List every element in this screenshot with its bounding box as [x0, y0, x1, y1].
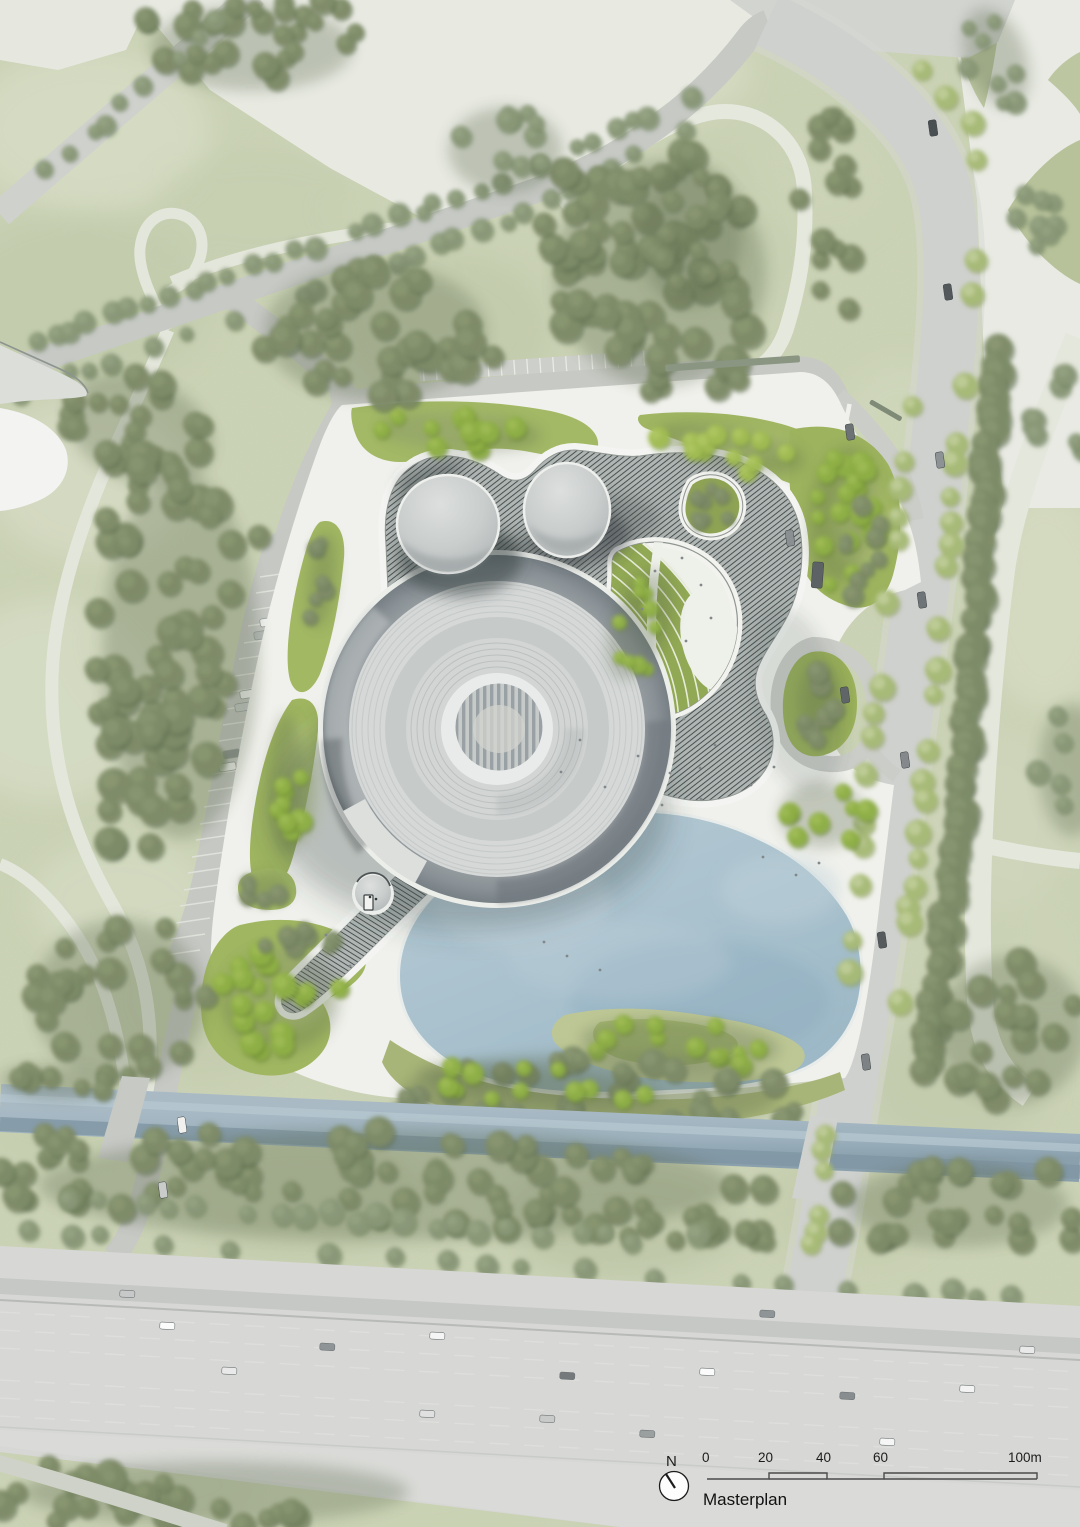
svg-text:Masterplan: Masterplan	[703, 1490, 787, 1509]
svg-text:N: N	[666, 1453, 677, 1470]
svg-text:40: 40	[816, 1450, 831, 1465]
svg-text:100m: 100m	[1008, 1450, 1042, 1465]
svg-text:0: 0	[702, 1450, 710, 1465]
svg-text:20: 20	[758, 1450, 773, 1465]
svg-text:60: 60	[873, 1450, 888, 1465]
